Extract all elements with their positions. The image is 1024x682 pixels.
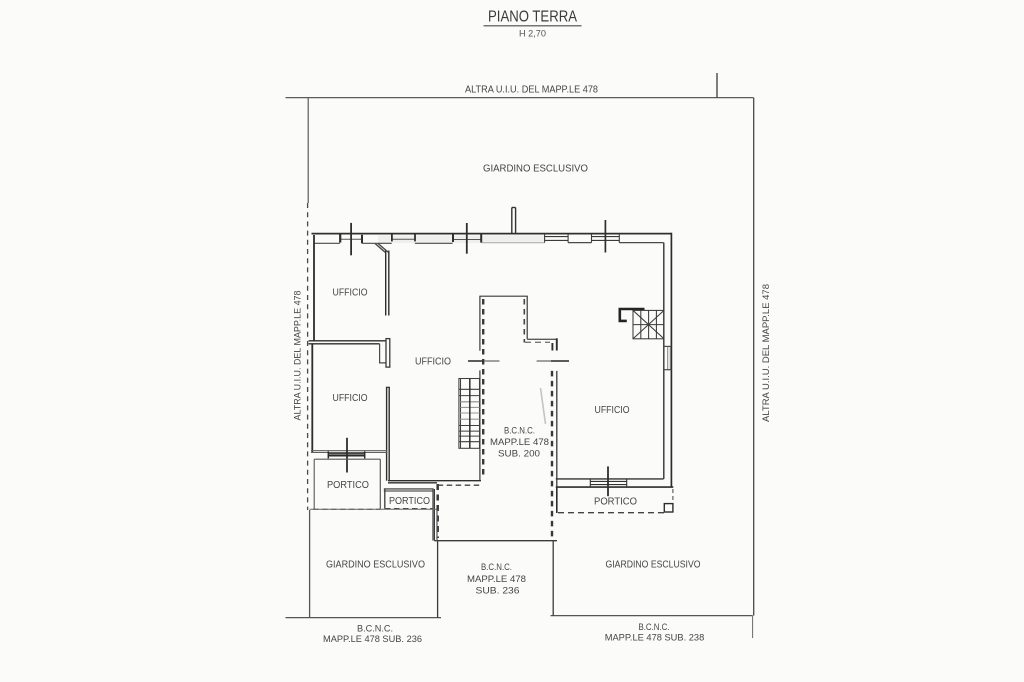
svg-text:GIARDINO ESCLUSIVO: GIARDINO ESCLUSIVO xyxy=(483,164,588,175)
svg-text:ALTRA U.I.U. DEL MAPP.LE 478: ALTRA U.I.U. DEL MAPP.LE 478 xyxy=(293,291,303,421)
svg-text:PORTICO: PORTICO xyxy=(389,496,430,507)
svg-text:PIANO TERRA: PIANO TERRA xyxy=(488,9,577,26)
svg-text:ALTRA U.I.U. DEL MAPP.LE 478: ALTRA U.I.U. DEL MAPP.LE 478 xyxy=(465,85,598,96)
svg-text:UFFICIO: UFFICIO xyxy=(333,288,368,299)
svg-text:MAPP.LE 478: MAPP.LE 478 xyxy=(467,574,526,584)
svg-text:UFFICIO: UFFICIO xyxy=(415,357,451,368)
svg-text:GIARDINO ESCLUSIVO: GIARDINO ESCLUSIVO xyxy=(326,560,425,571)
svg-text:B.C.N.C.: B.C.N.C. xyxy=(504,426,535,436)
svg-text:GIARDINO ESCLUSIVO: GIARDINO ESCLUSIVO xyxy=(606,560,701,571)
svg-text:H 2,70: H 2,70 xyxy=(519,28,546,39)
svg-text:MAPP.LE 478 SUB. 238: MAPP.LE 478 SUB. 238 xyxy=(605,633,705,643)
svg-text:B.C.N.C.: B.C.N.C. xyxy=(481,562,512,572)
svg-text:MAPP.LE 478 SUB. 236: MAPP.LE 478 SUB. 236 xyxy=(323,634,422,644)
svg-text:ALTRA U.I.U. DEL MAPP.LE 478: ALTRA U.I.U. DEL MAPP.LE 478 xyxy=(761,284,771,422)
svg-text:UFFICIO: UFFICIO xyxy=(595,405,630,416)
svg-text:B.C.N.C.: B.C.N.C. xyxy=(357,624,393,634)
svg-text:MAPP.LE 478: MAPP.LE 478 xyxy=(490,437,549,447)
svg-text:PORTICO: PORTICO xyxy=(327,480,369,491)
svg-text:UFFICIO: UFFICIO xyxy=(333,393,368,404)
svg-text:B.C.N.C.: B.C.N.C. xyxy=(639,622,670,632)
svg-text:PORTICO: PORTICO xyxy=(594,497,637,508)
svg-text:SUB. 200: SUB. 200 xyxy=(498,449,540,459)
svg-text:SUB. 236: SUB. 236 xyxy=(476,586,520,596)
